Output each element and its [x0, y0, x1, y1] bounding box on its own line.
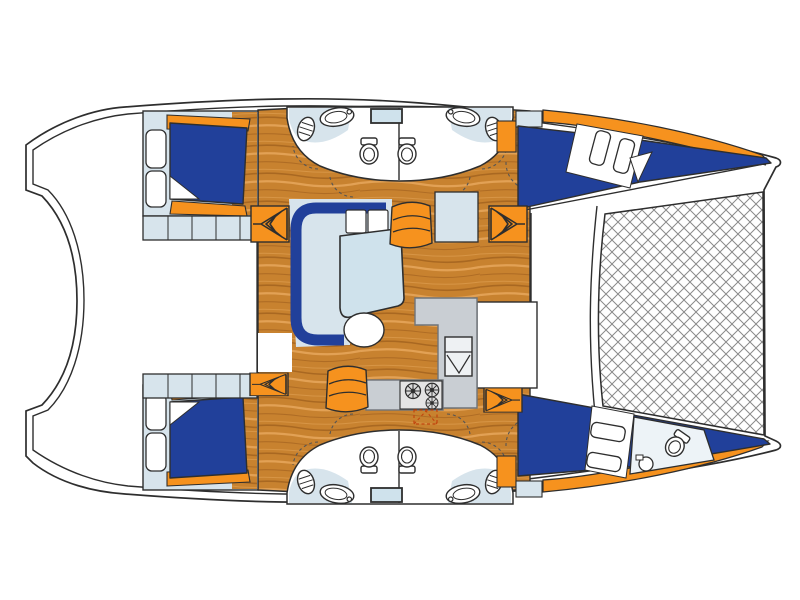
- entry-cabinet: [516, 111, 542, 127]
- stove-burner: [425, 383, 439, 397]
- steps-starboard-aft: [250, 373, 288, 396]
- deck-hatch: [371, 109, 402, 123]
- toilet-left: [360, 138, 378, 164]
- shelf-locker: [146, 171, 166, 207]
- seat-cushion: [346, 210, 366, 233]
- galley-seat: [326, 366, 368, 412]
- steps-port-fwd: [489, 206, 527, 242]
- aft-cabin-starboard: [143, 385, 258, 490]
- nav-cabinet: [435, 192, 478, 242]
- toilet-right: [398, 138, 416, 164]
- shelf-locker: [146, 130, 166, 168]
- saloon-white-locker: [258, 333, 292, 372]
- side-locker-band: [143, 216, 257, 240]
- entry-locker: [497, 121, 516, 152]
- trampoline: [590, 192, 768, 444]
- aft-cabin: [143, 111, 258, 216]
- galley-sink: [445, 337, 472, 376]
- round-stool: [344, 313, 384, 347]
- stairwell-room: [477, 302, 537, 388]
- steps-starboard-fwd: [484, 388, 522, 412]
- stove-burner: [406, 384, 421, 399]
- basin-faucet: [636, 455, 643, 460]
- steps-port-aft: [251, 206, 289, 242]
- stove-burner: [426, 397, 438, 409]
- side-locker-band-starboard: [143, 374, 257, 398]
- catamaran-floor-plan: [0, 0, 800, 600]
- floor-plan-svg: [0, 0, 800, 600]
- helm-seat: [390, 202, 432, 248]
- trampoline-net: [598, 192, 764, 435]
- seat-cushion: [368, 210, 388, 233]
